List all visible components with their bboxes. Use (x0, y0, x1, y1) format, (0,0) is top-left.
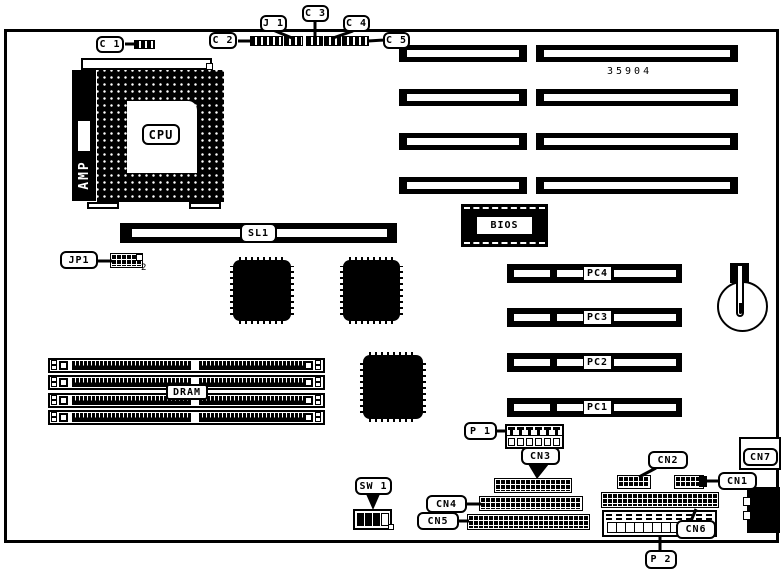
cn4-callout: CN4 (426, 495, 467, 513)
c2-callout: C 2 (209, 32, 237, 49)
j1-callout: J 1 (260, 15, 287, 32)
sw1-callout: SW 1 (355, 477, 392, 495)
c1-callout: C 1 (96, 36, 124, 53)
c5-callout: C 5 (383, 32, 410, 49)
cn6-callout: CN6 (676, 520, 716, 539)
cn3-callout: CN3 (521, 447, 560, 465)
dram-label: DRAM (166, 384, 208, 400)
c3-callout: C 3 (302, 5, 329, 22)
cpu-label: CPU (142, 124, 180, 145)
cn1-callout: CN1 (718, 472, 757, 490)
cn7-callout: CN7 (743, 448, 778, 466)
cn5-callout: CN5 (417, 512, 459, 530)
p1-callout: P 1 (464, 422, 497, 440)
c4-callout: C 4 (343, 15, 370, 32)
p2-callout: P 2 (645, 550, 677, 569)
sl1-label: SL1 (240, 223, 277, 243)
motherboard-diagram: AMP CPU 35904 BIOS SL1 2 (0, 0, 783, 572)
jp1-callout: JP1 (60, 251, 98, 269)
cn2-callout: CN2 (648, 451, 688, 469)
